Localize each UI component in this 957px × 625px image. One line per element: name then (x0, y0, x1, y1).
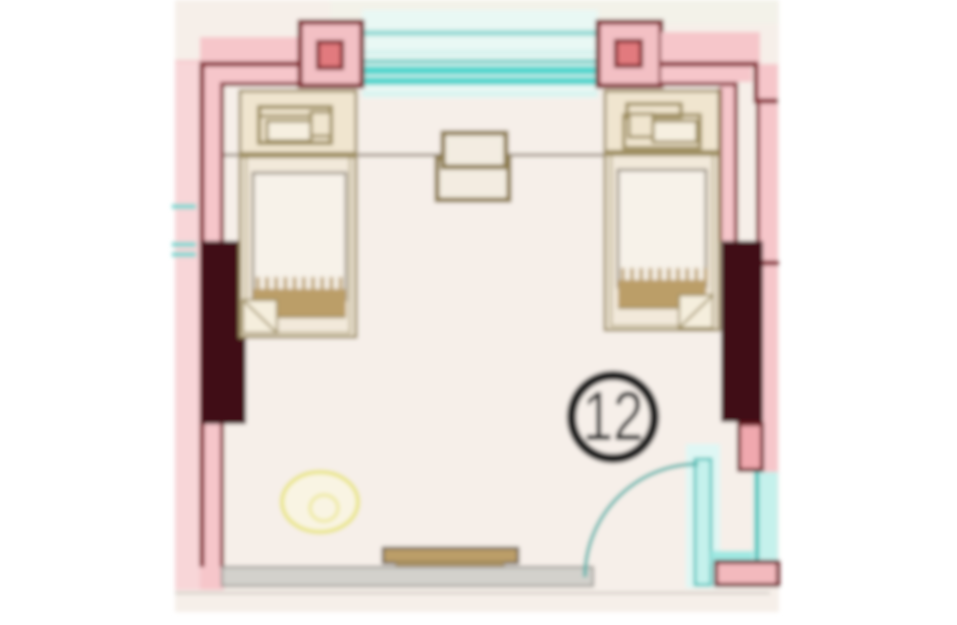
svg-text:12: 12 (583, 378, 644, 456)
